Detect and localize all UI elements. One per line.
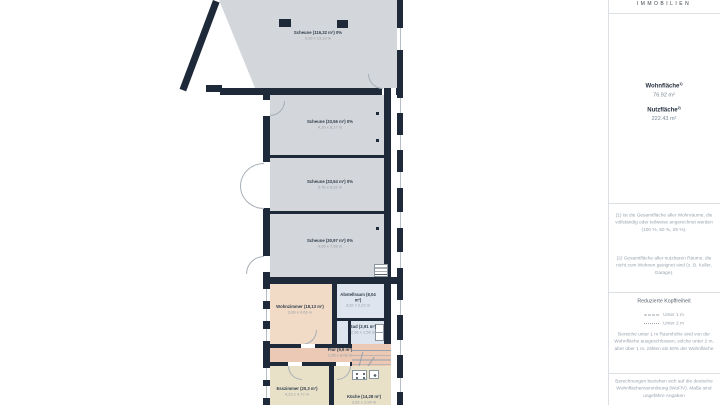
wall-bottom-section-top [263, 277, 403, 284]
window-glazing [400, 340, 401, 355]
window-glazing [266, 309, 267, 321]
headroom-title: Reduzierte Kopffreiheit [614, 298, 714, 304]
window-glazing [266, 289, 267, 301]
dashed-line-icon [644, 314, 659, 315]
room-scheune-1 [219, 0, 255, 88]
window-glazing [400, 135, 401, 150]
legend-label: Unter 1 m [663, 312, 684, 318]
wall-divider-1 [270, 155, 384, 158]
window-glazing [400, 98, 401, 113]
footnote-2: (2) Gesamtfläche aller nutzbaren Räume, … [614, 255, 714, 276]
wohnflaeche-footnote-ref: 1) [679, 83, 682, 87]
pillar [279, 19, 291, 27]
double-door-opening [263, 162, 270, 208]
info-panel: IMMOBILIEN Wohnfläche1) 76.92 m² Nutzflä… [608, 0, 720, 405]
disclaimer-text: Berechnungen beziehen sich auf die deuts… [614, 378, 714, 399]
panel-divider [608, 292, 720, 293]
window-glazing [266, 368, 267, 380]
ladder-icon [374, 264, 388, 277]
room-flur [270, 348, 352, 362]
window-glazing [400, 300, 401, 315]
room-abstellraum [337, 284, 378, 318]
wall-left [263, 88, 270, 405]
headroom-text: Bereiche unter 1 m Raumhöhe sind von der… [614, 331, 714, 352]
fixture-divider [375, 332, 384, 333]
rooms-scheune-column [270, 95, 384, 277]
door-arc [246, 256, 264, 274]
brand-logo: IMMOBILIEN [608, 1, 720, 7]
door-arc [240, 186, 264, 209]
post-marker [376, 139, 379, 142]
door-opening [263, 100, 270, 116]
window-glazing [400, 28, 401, 50]
post-marker [376, 227, 379, 230]
door-opening [263, 256, 270, 272]
dotted-line-icon [644, 323, 659, 324]
window-glazing [400, 252, 401, 268]
wohnflaeche-label: Wohnfläche [645, 82, 679, 89]
stove-icon [352, 370, 367, 380]
pillar [337, 20, 348, 28]
floor-plan: Scheune (116,32 m²) 0% 9,06 x 13,13 m Sc… [0, 0, 600, 405]
nutzflaeche-value: 222.43 m² [608, 116, 720, 122]
panel-divider [608, 203, 720, 204]
window-glazing [266, 386, 267, 398]
wall-r1-bottom [220, 88, 382, 95]
panel-divider [608, 13, 720, 14]
area-summary: Wohnfläche1) 76.92 m² Nutzfläche2) 222.4… [608, 82, 720, 122]
window-glazing [400, 172, 401, 188]
nutzflaeche-footnote-ref: 2) [678, 106, 681, 110]
window-glazing [400, 212, 401, 228]
headroom-legend: Unter 1 m Unter 2 m [614, 312, 714, 329]
wall-bad-left [348, 321, 351, 344]
legend-under-2m: Unter 2 m [614, 321, 714, 327]
panel-divider [608, 373, 720, 374]
post-marker [376, 112, 379, 115]
legend-label: Unter 2 m [663, 321, 684, 327]
window-glazing [400, 378, 401, 392]
wall-divider-2 [270, 211, 384, 214]
floorplan-page: Scheune (116,32 m²) 0% 9,06 x 13,13 m Sc… [0, 0, 720, 405]
window-glazing [266, 329, 267, 341]
nutzflaeche-label: Nutzfläche [647, 106, 677, 113]
door-arc [240, 163, 264, 186]
bad-nook [378, 284, 384, 318]
sink-icon [369, 370, 379, 379]
footnote-1: (1) Ist die Gesamtfläche aller Wohnräume… [614, 212, 714, 233]
wohnflaeche-value: 76.92 m² [608, 92, 720, 98]
room-wohnzimmer [270, 284, 332, 344]
wall-diagonal [180, 0, 220, 91]
legend-under-1m: Unter 1 m [614, 312, 714, 318]
